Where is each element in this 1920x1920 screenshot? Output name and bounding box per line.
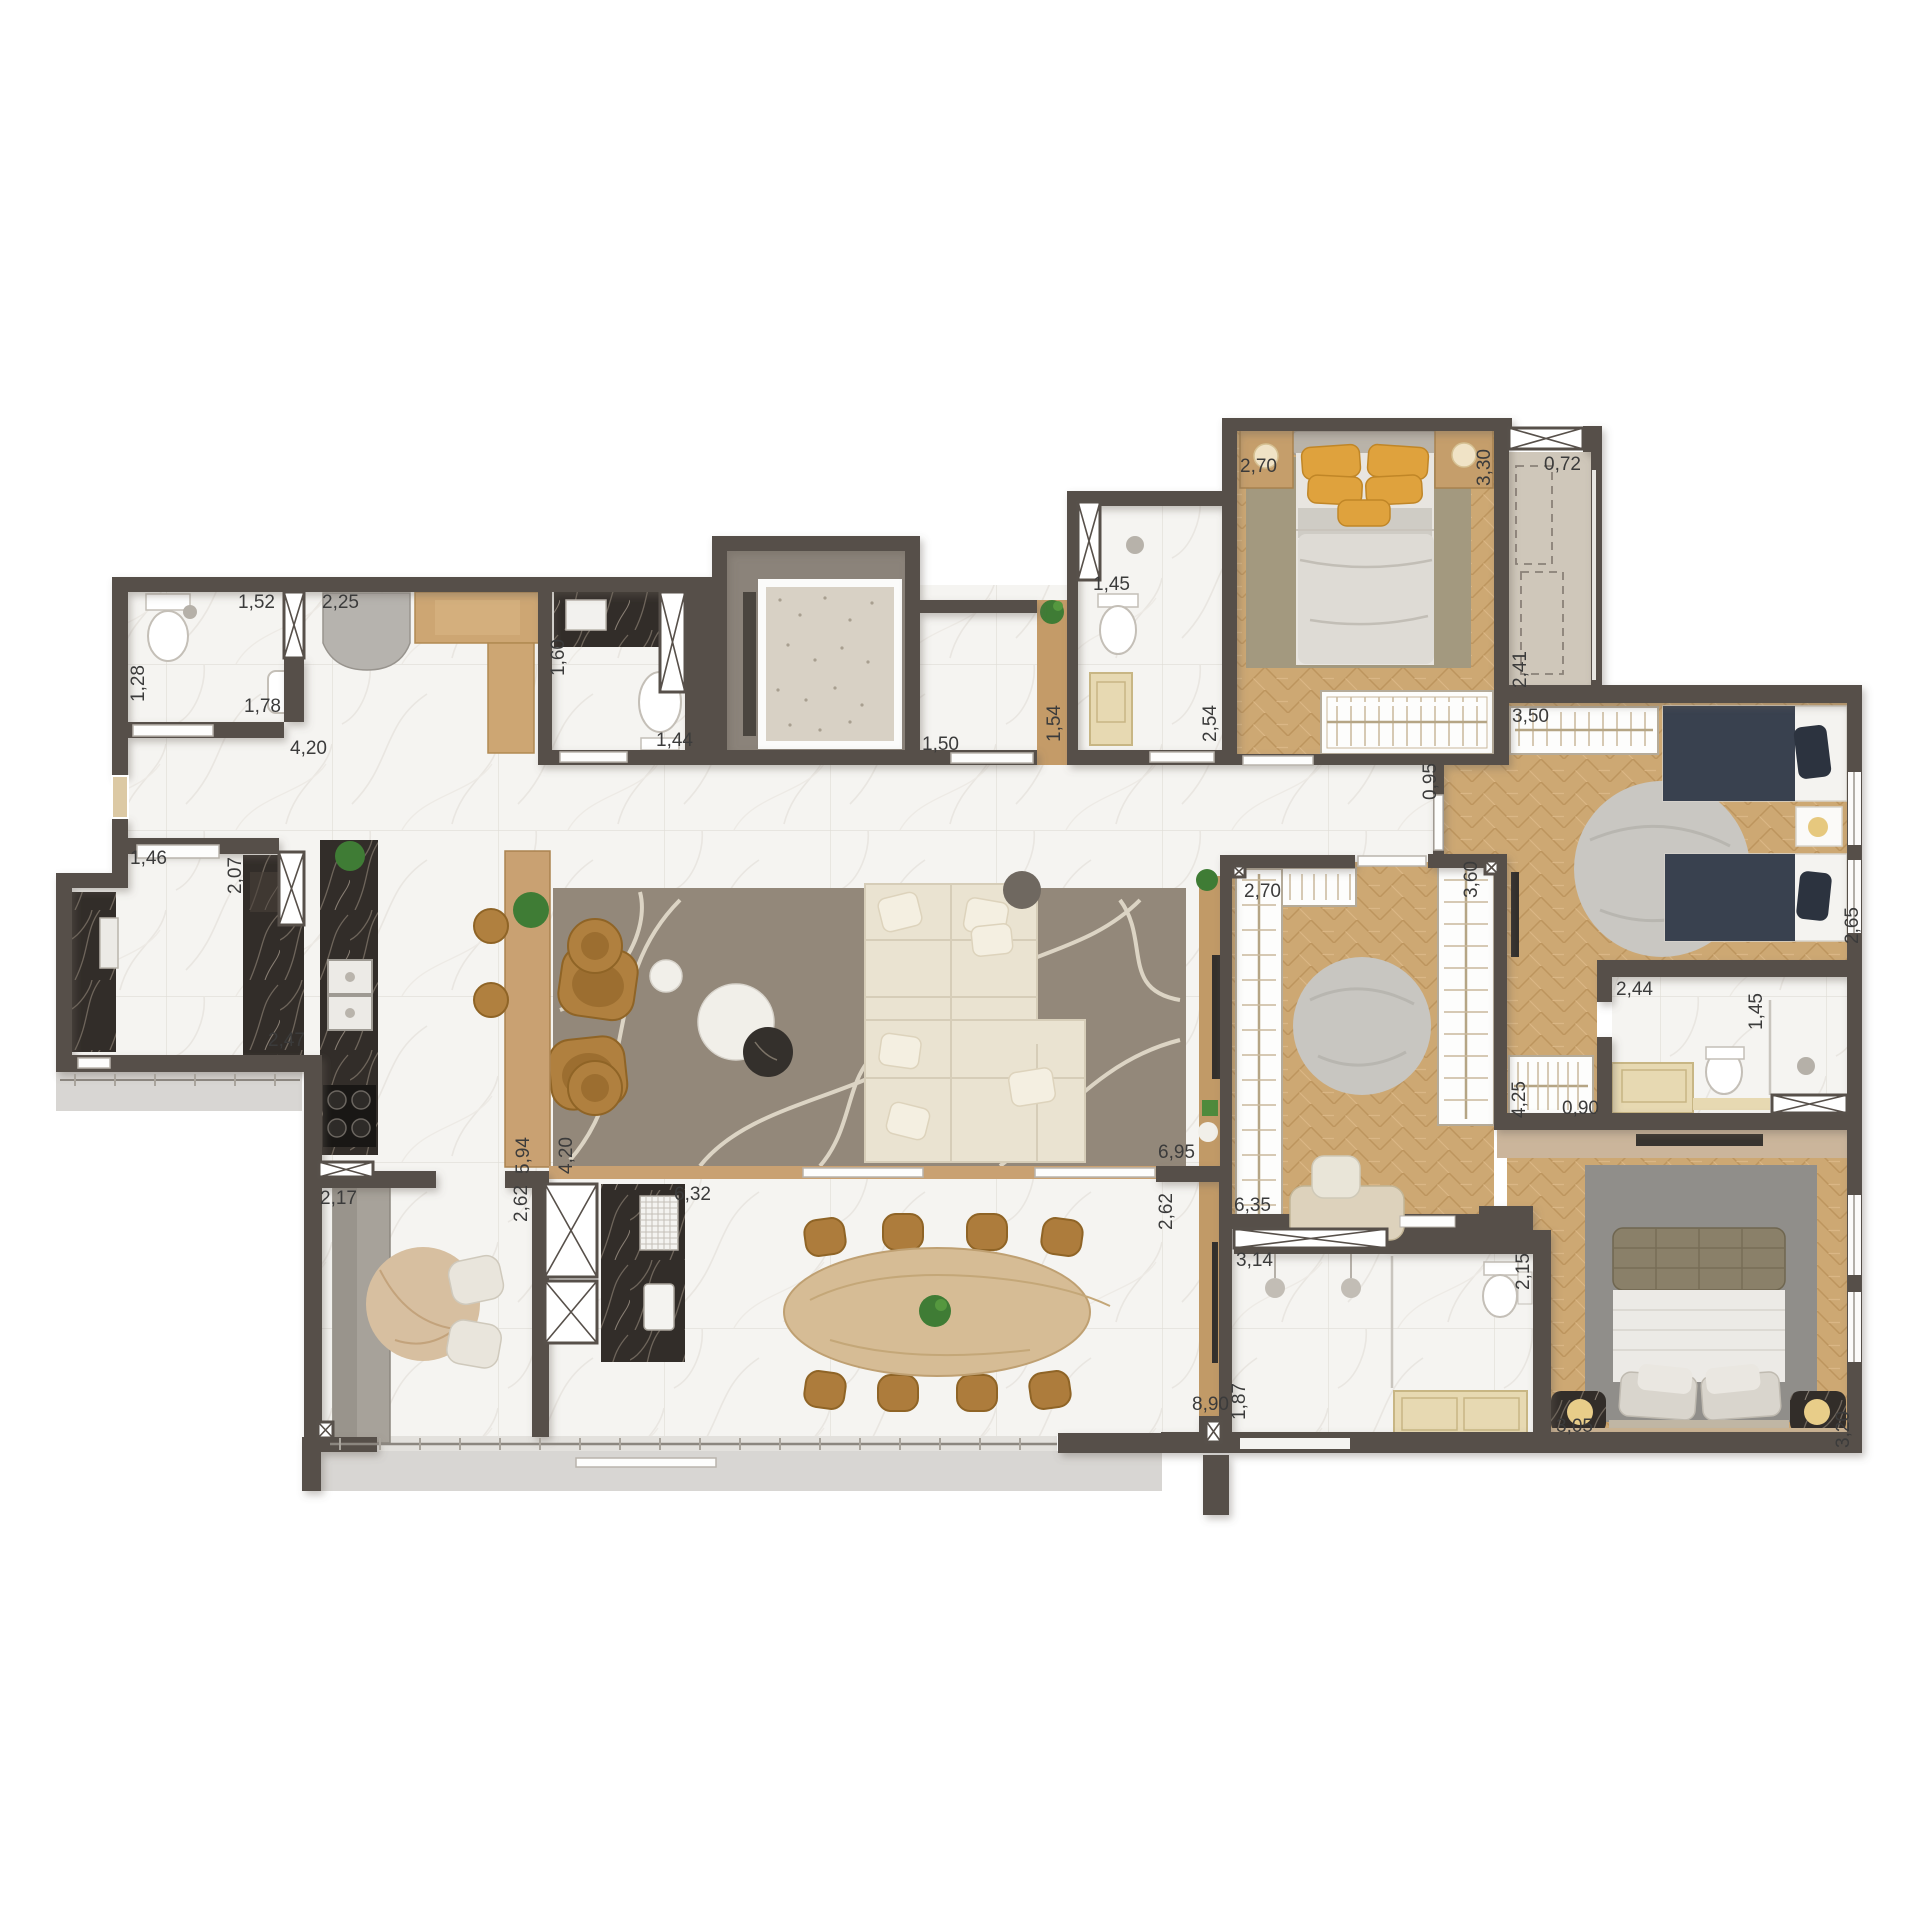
svg-text:5,94: 5,94 <box>513 1137 534 1174</box>
svg-text:1,54: 1,54 <box>1044 705 1065 742</box>
svg-text:2,70: 2,70 <box>1244 881 1281 902</box>
svg-text:2,25: 2,25 <box>322 592 359 613</box>
svg-text:1,45: 1,45 <box>1093 574 1130 595</box>
svg-text:1,45: 1,45 <box>1746 993 1767 1030</box>
svg-text:3,30: 3,30 <box>1474 449 1495 486</box>
svg-text:3,05: 3,05 <box>1556 1416 1593 1437</box>
svg-text:6,35: 6,35 <box>1234 1195 1271 1216</box>
svg-text:4,20: 4,20 <box>290 738 327 759</box>
svg-text:6,32: 6,32 <box>674 1184 711 1205</box>
svg-text:3,20: 3,20 <box>1833 1411 1854 1448</box>
svg-text:2,47: 2,47 <box>268 1030 305 1051</box>
svg-text:1,52: 1,52 <box>238 592 275 613</box>
svg-text:1,46: 1,46 <box>130 848 167 869</box>
svg-text:0,72: 0,72 <box>1544 454 1581 475</box>
svg-text:4,20: 4,20 <box>556 1137 577 1174</box>
svg-text:1,50: 1,50 <box>922 734 959 755</box>
svg-text:2,41: 2,41 <box>1510 651 1531 688</box>
svg-text:3,14: 3,14 <box>1236 1250 1273 1271</box>
svg-text:2,70: 2,70 <box>1240 456 1277 477</box>
svg-text:2,62: 2,62 <box>511 1185 532 1222</box>
svg-text:1,44: 1,44 <box>656 730 693 751</box>
svg-text:8,90: 8,90 <box>1192 1394 1229 1415</box>
svg-text:1,78: 1,78 <box>244 696 281 717</box>
svg-text:6,95: 6,95 <box>1158 1142 1195 1163</box>
svg-text:1,28: 1,28 <box>128 665 149 702</box>
svg-text:1,87: 1,87 <box>1229 1383 1250 1420</box>
svg-text:2,15: 2,15 <box>1513 1253 1534 1290</box>
svg-text:2,54: 2,54 <box>1200 705 1221 742</box>
svg-text:2,17: 2,17 <box>320 1188 357 1209</box>
svg-text:0,90: 0,90 <box>1562 1098 1599 1119</box>
svg-text:4,25: 4,25 <box>1509 1081 1530 1118</box>
svg-text:2,07: 2,07 <box>225 857 246 894</box>
svg-text:1,60: 1,60 <box>548 639 569 676</box>
svg-text:0,95: 0,95 <box>1420 763 1441 800</box>
svg-text:2,44: 2,44 <box>1616 979 1653 1000</box>
svg-text:3,60: 3,60 <box>1461 861 1482 898</box>
svg-text:3,50: 3,50 <box>1512 706 1549 727</box>
svg-text:2,65: 2,65 <box>1842 907 1863 944</box>
svg-text:2,62: 2,62 <box>1156 1193 1177 1230</box>
